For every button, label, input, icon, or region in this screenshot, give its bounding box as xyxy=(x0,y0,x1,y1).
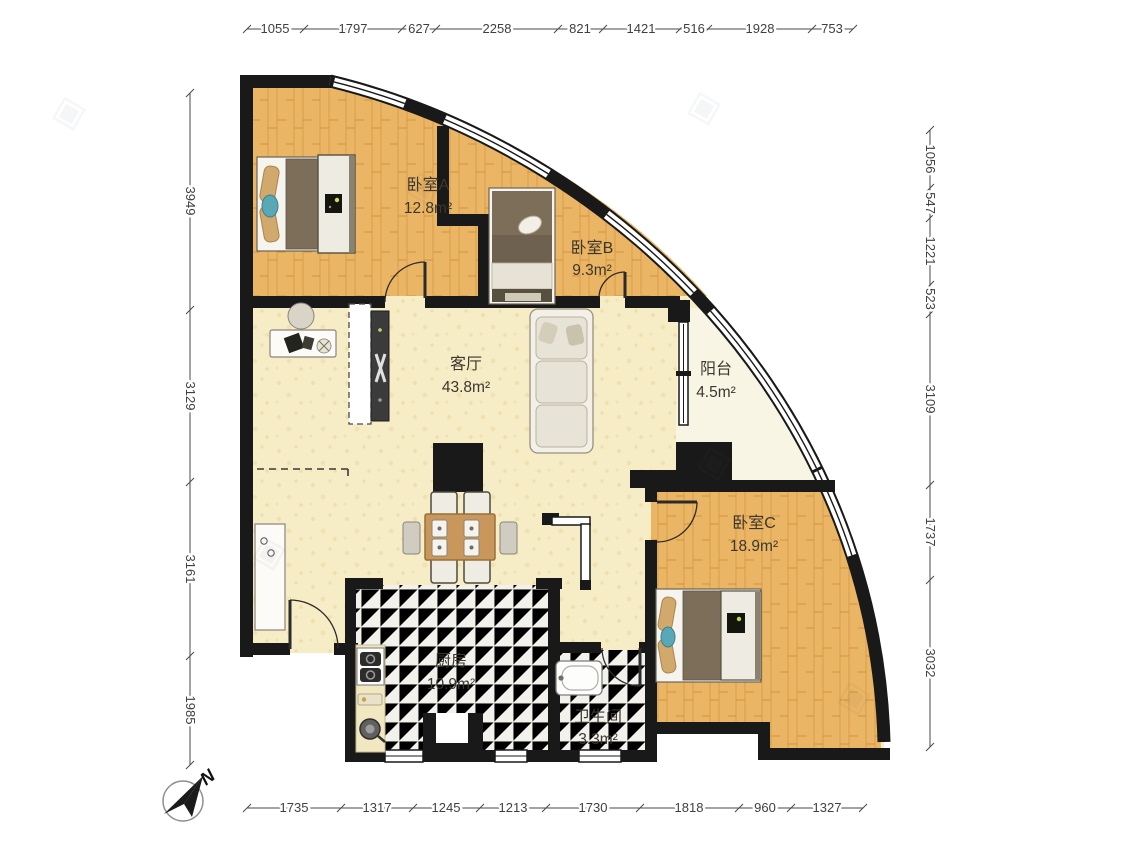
dim-label: 1213 xyxy=(499,800,528,815)
bed-a-icon xyxy=(257,157,319,251)
outer-wall-top xyxy=(240,75,332,88)
room-area-living: 43.8m² xyxy=(442,379,490,396)
room-name-bedroom-c: 卧室C xyxy=(732,514,776,532)
room-area-kitchen: 10.9m² xyxy=(427,676,475,693)
sofa-icon xyxy=(530,309,593,453)
room-name-kitchen: 厨房 xyxy=(435,652,467,670)
dim-label: 1055 xyxy=(261,21,290,36)
svg-text:◈: ◈ xyxy=(44,80,92,140)
room-area-bedroom-c: 18.9m² xyxy=(730,538,778,555)
dim-label: 753 xyxy=(821,21,843,36)
dim-label: 547 xyxy=(923,192,938,214)
dim-label: 1317 xyxy=(363,800,392,815)
room-name-bedroom-b: 卧室B xyxy=(571,239,614,257)
dim-label: 821 xyxy=(569,21,591,36)
dim-label: 2258 xyxy=(483,21,512,36)
dim-label: 3109 xyxy=(923,385,938,414)
dim-label: 1056 xyxy=(923,145,938,174)
wardrobe-a-icon xyxy=(318,155,355,253)
dim-label: 1327 xyxy=(813,800,842,815)
bed-b-icon xyxy=(489,188,555,304)
dim-label: 3032 xyxy=(923,649,938,678)
room-area-bedroom-b: 9.3m² xyxy=(572,262,612,279)
room-area-bathroom: 3.3m² xyxy=(578,731,618,748)
floor-plan-canvas: 卧室A 12.8m² 卧室B 9.3m² 客厅 43.8m² 阳台 4.5m² … xyxy=(0,0,1125,844)
dim-label: 1730 xyxy=(579,800,608,815)
room-name-living: 客厅 xyxy=(450,355,482,373)
room-area-balcony: 4.5m² xyxy=(696,384,736,401)
bathtub-icon xyxy=(556,661,602,695)
room-name-bathroom: 卫生间 xyxy=(574,708,622,726)
tv-cabinet-icon xyxy=(349,304,389,424)
dim-label: 1737 xyxy=(923,518,938,547)
dim-label: 1797 xyxy=(339,21,368,36)
svg-text:◈: ◈ xyxy=(679,75,727,135)
floor-plan-page: 卧室A 12.8m² 卧室B 9.3m² 客厅 43.8m² 阳台 4.5m² … xyxy=(0,0,1125,844)
dim-label: 1928 xyxy=(746,21,775,36)
dim-label: 516 xyxy=(683,21,705,36)
dim-label: 1985 xyxy=(183,696,198,725)
north-compass: N xyxy=(163,765,219,821)
dim-label: 1221 xyxy=(923,237,938,266)
outer-wall-left xyxy=(240,75,253,657)
dim-label: 1735 xyxy=(280,800,309,815)
dim-label: 960 xyxy=(754,800,776,815)
room-name-balcony: 阳台 xyxy=(700,360,732,378)
kitchen-counter-icon xyxy=(356,645,385,752)
dim-label: 523 xyxy=(923,288,938,310)
dim-label: 3949 xyxy=(183,187,198,216)
structural-column xyxy=(433,443,483,492)
dim-label: 627 xyxy=(408,21,430,36)
dim-label: 1818 xyxy=(675,800,704,815)
dim-label: 3129 xyxy=(183,382,198,411)
dim-label: 3161 xyxy=(183,555,198,584)
bed-c-icon xyxy=(656,589,761,682)
screen-partition-v xyxy=(581,524,590,582)
dim-label: 1421 xyxy=(627,21,656,36)
dim-label: 1245 xyxy=(432,800,461,815)
